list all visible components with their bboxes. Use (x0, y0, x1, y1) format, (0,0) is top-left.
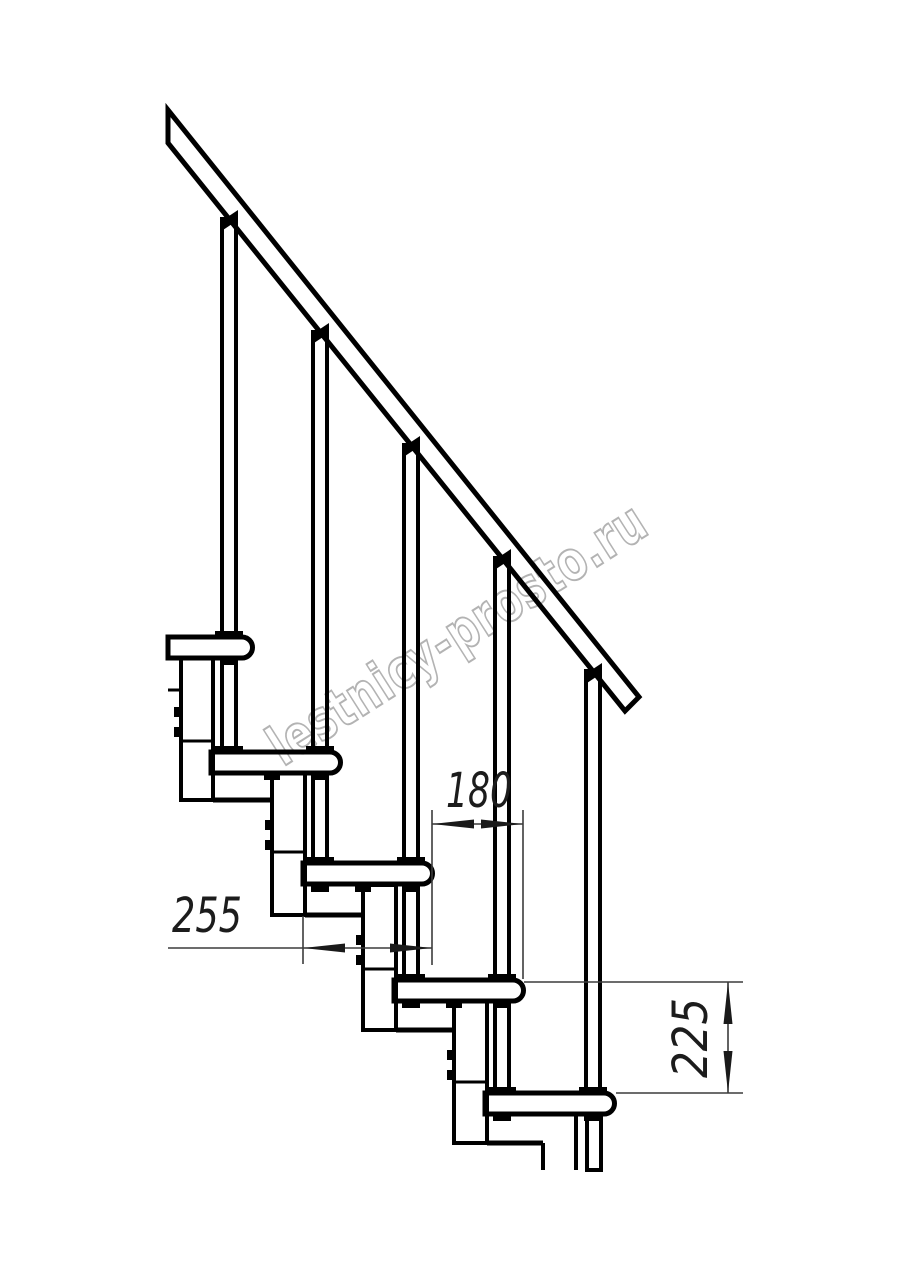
nut (493, 1001, 511, 1008)
post-foot (215, 746, 243, 752)
dimension-step-rise: 225 (524, 982, 743, 1093)
box-bolt (265, 840, 274, 850)
nut (355, 885, 371, 892)
post-foot (215, 631, 243, 637)
post-foot (306, 746, 334, 752)
dimension-label-180: 180 (446, 763, 512, 819)
post-foot (397, 857, 425, 863)
arrowhead (303, 944, 345, 953)
staircase-technical-drawing: lestnicy-prosto.ru (0, 0, 914, 1280)
post-foot (488, 1087, 516, 1093)
box-bolt (356, 955, 365, 965)
nut (311, 885, 329, 892)
dimension-label-255: 255 (172, 888, 242, 944)
box-bolt (447, 1070, 456, 1080)
nut (446, 1001, 462, 1008)
box-bolt (265, 820, 274, 830)
nut (584, 1114, 602, 1121)
arrowhead (432, 820, 474, 829)
box-bolt (174, 707, 183, 717)
post-foot (397, 974, 425, 980)
nut (311, 773, 329, 780)
staircase-technical-drawing-page: lestnicy-prosto.ru (0, 0, 914, 1280)
nut (220, 658, 238, 665)
post-foot (306, 857, 334, 863)
box-bolt (174, 727, 183, 737)
nut (264, 773, 280, 780)
arrowhead (724, 1051, 733, 1093)
box-bolt (356, 935, 365, 945)
box-bolt (447, 1050, 456, 1060)
dimension-label-225: 225 (663, 998, 719, 1078)
post-foot (488, 974, 516, 980)
arrowhead (724, 982, 733, 1024)
post-foot (579, 1087, 607, 1093)
nut (493, 1114, 511, 1121)
nut (402, 885, 420, 892)
nut (402, 1001, 420, 1008)
